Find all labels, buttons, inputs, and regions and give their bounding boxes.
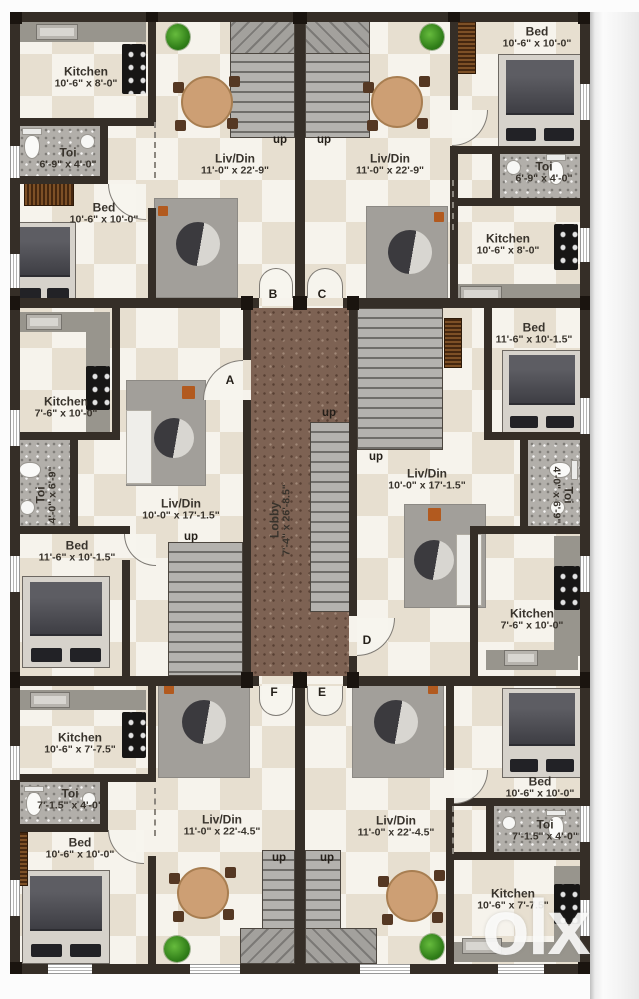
room-dims: 11'-0" x 22'-9": [356, 166, 424, 178]
decor-accent: [158, 206, 168, 216]
room-dims: 7'-4" x 26'-8.5": [282, 484, 294, 556]
kitchen-sink: [30, 692, 70, 708]
round-table: [154, 418, 194, 458]
wall: [243, 400, 251, 686]
bed: [12, 222, 76, 306]
stove: [122, 44, 146, 94]
plant: [164, 936, 190, 962]
page-margin-top: [0, 0, 639, 12]
toilet: [24, 135, 40, 159]
window: [360, 964, 410, 974]
chair: [417, 118, 428, 129]
wall: [70, 440, 78, 526]
room-label-toi-bottom-left: Toi7'-1.5" x 4'-0": [37, 787, 103, 812]
room-name: Toi: [535, 160, 552, 173]
wardrobe: [444, 318, 462, 368]
wall: [470, 526, 590, 534]
door-label-d: D: [363, 633, 372, 647]
room-label-bed-mid-right: Bed11'-6" x 10'-1.5": [496, 321, 573, 346]
column: [347, 296, 359, 310]
door-label-f: F: [270, 685, 277, 699]
wall: [10, 774, 156, 782]
wall: [470, 534, 478, 676]
page-margin-left: [0, 0, 10, 999]
room-dims: 7'-6" x 10'-0": [35, 409, 98, 421]
column: [293, 672, 307, 688]
opening-dashed: [452, 180, 454, 230]
wall: [520, 440, 528, 526]
kitchen-sink: [26, 314, 62, 330]
room-label-liv-top-left: Liv/Din11'-0" x 22'-9": [201, 152, 269, 177]
room-label-kitchen-mid-right: Kitchen7'-6" x 10'-0": [501, 607, 564, 632]
window: [580, 398, 590, 434]
bed: [498, 54, 582, 148]
kitchen-sink: [36, 24, 78, 40]
chair: [225, 867, 236, 878]
floorplan-image: Kitchen10'-6" x 8'-0" Toi6'-9" x 4'-0" B…: [0, 0, 639, 999]
room-label-bed-top-right: Bed10'-6" x 10'-0": [503, 25, 572, 50]
room-dims: 10'-6" x 10'-0": [70, 215, 139, 227]
room-label-liv-mid-right: Liv/Din10'-0" x 17'-1.5": [388, 467, 465, 492]
window: [580, 806, 590, 842]
wall: [450, 12, 458, 110]
room-label-toi-mid-left: Toi4'-0" x 6'-9": [34, 467, 59, 524]
room-label-bed-bottom-right: Bed10'-6" x 10'-0": [506, 775, 575, 800]
room-label-toi-bottom-right: Toi7'-1.5" x 4'-0": [512, 818, 578, 843]
room-label-liv-bottom-left: Liv/Din11'-0" x 22'-4.5": [184, 813, 261, 838]
wall: [295, 12, 305, 298]
window: [190, 964, 240, 974]
wall: [10, 298, 259, 308]
window: [10, 254, 20, 288]
wall: [10, 118, 156, 126]
bed: [502, 688, 582, 778]
bed: [22, 576, 110, 668]
chair: [419, 76, 430, 87]
wall: [112, 308, 120, 440]
staircase-lobby: [310, 422, 350, 612]
wall: [122, 560, 130, 676]
wall: [450, 198, 590, 206]
chair: [432, 912, 443, 923]
chair: [227, 118, 238, 129]
window: [580, 228, 590, 262]
plant: [420, 24, 444, 50]
stairs-up-label: up: [322, 407, 336, 419]
chair: [434, 870, 445, 881]
wall: [484, 308, 492, 440]
room-dims: 10'-0" x 17'-1.5": [142, 511, 219, 523]
room-name: Bed: [69, 836, 92, 849]
staircase-mid-right: [357, 308, 443, 450]
room-name: Bed: [529, 775, 552, 788]
wardrobe: [24, 182, 74, 206]
stairs-up-label: up: [273, 134, 287, 146]
page-margin-right: [590, 0, 639, 999]
dining-table: [181, 76, 233, 128]
room-dims: 4'-0" x 6'-9": [48, 467, 60, 524]
room-dims: 7'-1.5" x 4'-0": [37, 801, 103, 813]
room-name: Toi: [61, 787, 78, 800]
door-label-a: A: [226, 373, 235, 387]
column: [10, 962, 22, 974]
room-name: Liv/Din: [407, 467, 447, 480]
wall: [492, 154, 500, 200]
room-name: Toi: [34, 486, 47, 503]
staircase-mid-left: [168, 542, 243, 676]
room-dims: 6'-9" x 4'-0": [40, 160, 97, 172]
room-label-kitchen-bottom-left: Kitchen10'-6" x 7'-7.5": [44, 731, 116, 756]
room-label-toi-top-left: Toi6'-9" x 4'-0": [40, 146, 97, 171]
room-dims: 10'-6" x 10'-0": [503, 39, 572, 51]
desk: [456, 534, 482, 606]
room-dims: 10'-0" x 17'-1.5": [388, 481, 465, 493]
opening-dashed: [452, 806, 454, 854]
room-label-bed-top-left: Bed10'-6" x 10'-0": [70, 201, 139, 226]
door-label-c: C: [318, 287, 327, 301]
stove: [554, 224, 578, 270]
window: [10, 556, 20, 592]
room-name: Liv/Din: [202, 813, 242, 826]
column: [10, 12, 22, 24]
room-name: Bed: [526, 25, 549, 38]
dining-table: [371, 76, 423, 128]
column: [241, 672, 253, 688]
room-dims: 7'-6" x 10'-0": [501, 621, 564, 633]
wall: [148, 208, 156, 298]
stove: [554, 566, 580, 610]
wall: [450, 146, 590, 154]
room-name: Toi: [59, 146, 76, 159]
room-dims: 10'-6" x 10'-0": [46, 850, 115, 862]
bed: [22, 870, 110, 964]
wall: [10, 432, 120, 440]
page-margin-bottom: [0, 974, 590, 999]
desk: [126, 410, 152, 484]
column: [241, 296, 253, 310]
chair: [382, 914, 393, 925]
room-dims: 11'-0" x 22'-4.5": [184, 827, 261, 839]
wall: [10, 676, 259, 686]
room-dims: 11'-6" x 10'-1.5": [496, 335, 573, 347]
round-table: [414, 540, 454, 580]
room-label-liv-mid-left: Liv/Din10'-0" x 17'-1.5": [142, 497, 219, 522]
column: [293, 296, 307, 310]
room-dims: 11'-0" x 22'-4.5": [358, 828, 435, 840]
room-name: Kitchen: [58, 731, 102, 744]
room-name: Liv/Din: [215, 152, 255, 165]
room-label-liv-top-right: Liv/Din11'-0" x 22'-9": [356, 152, 424, 177]
window: [10, 746, 20, 780]
dining-table: [386, 870, 438, 922]
room-label-kitchen-mid-left: Kitchen7'-6" x 10'-0": [35, 395, 98, 420]
column: [347, 672, 359, 688]
door-label-e: E: [318, 685, 326, 699]
wall: [10, 176, 108, 184]
wall: [100, 126, 108, 176]
watermark-olx: olx: [482, 888, 589, 966]
window: [580, 556, 590, 592]
room-label-toi-top-right: Toi6'-9" x 4'-0": [516, 160, 573, 185]
wall: [148, 682, 156, 778]
chair: [175, 120, 186, 131]
window: [580, 84, 590, 120]
room-dims: 10'-6" x 8'-0": [477, 246, 540, 258]
column: [10, 296, 20, 310]
column: [578, 12, 590, 24]
room-name: Bed: [523, 321, 546, 334]
room-name: Kitchen: [510, 607, 554, 620]
stairs-up-label: up: [184, 531, 198, 543]
coffee-table: [388, 230, 432, 274]
opening-dashed: [154, 122, 156, 178]
coffee-table: [176, 222, 220, 266]
wall: [343, 676, 590, 686]
column: [448, 12, 460, 22]
wall: [10, 526, 130, 534]
stove: [122, 712, 146, 758]
decor-accent: [434, 212, 444, 222]
wall: [148, 12, 156, 122]
stairs-up-label: up: [369, 451, 383, 463]
window: [10, 410, 20, 446]
door-label-b: B: [269, 287, 278, 301]
room-name: Lobby: [268, 502, 281, 538]
wall: [349, 298, 357, 616]
room-label-bed-bottom-left: Bed10'-6" x 10'-0": [46, 836, 115, 861]
column: [293, 12, 307, 24]
room-label-liv-bottom-right: Liv/Din11'-0" x 22'-4.5": [358, 814, 435, 839]
stairs-up-label: up: [317, 134, 331, 146]
wall: [446, 682, 454, 770]
room-dims: 10'-6" x 8'-0": [55, 79, 118, 91]
window: [10, 146, 20, 178]
room-name: Kitchen: [64, 65, 108, 78]
room-dims: 10'-6" x 10'-0": [506, 789, 575, 801]
room-name: Bed: [66, 539, 89, 552]
column: [146, 12, 158, 22]
room-name: Liv/Din: [370, 152, 410, 165]
column: [10, 672, 20, 688]
room-label-bed-mid-left: Bed11'-6" x 10'-1.5": [39, 539, 116, 564]
room-name: Liv/Din: [376, 814, 416, 827]
room-label-kitchen-top-right: Kitchen10'-6" x 8'-0": [477, 232, 540, 257]
room-name: Toi: [536, 818, 553, 831]
room-name: Kitchen: [44, 395, 88, 408]
kitchen-sink: [504, 650, 538, 666]
orange-chair: [428, 508, 441, 521]
room-dims: 4'-0" x 6'-9": [549, 467, 561, 524]
wall: [484, 432, 590, 440]
window: [10, 880, 20, 916]
chair: [229, 76, 240, 87]
room-label-toi-mid-right: Toi4'-0" x 6'-9": [549, 467, 574, 524]
room-dims: 6'-9" x 4'-0": [516, 174, 573, 186]
wall: [486, 806, 494, 852]
room-label-lobby: Lobby7'-4" x 26'-8.5": [268, 484, 293, 556]
room-dims: 11'-0" x 22'-9": [201, 166, 269, 178]
plant: [420, 934, 444, 960]
chair: [367, 120, 378, 131]
orange-chair: [182, 386, 195, 399]
staircase-winder-bottom-right: [305, 928, 377, 964]
room-name: Liv/Din: [161, 497, 201, 510]
room-dims: 7'-1.5" x 4'-0": [512, 832, 578, 844]
wall: [295, 676, 305, 974]
room-label-kitchen-top-left: Kitchen10'-6" x 8'-0": [55, 65, 118, 90]
room-name: Bed: [93, 201, 116, 214]
wall: [446, 852, 590, 860]
wall: [10, 824, 108, 832]
column: [580, 672, 590, 688]
stairs-up-label: up: [320, 852, 334, 864]
bed: [502, 350, 582, 434]
room-name: Toi: [561, 486, 574, 503]
wall: [343, 298, 590, 308]
room-dims: 10'-6" x 7'-7.5": [44, 745, 116, 757]
window: [48, 964, 92, 974]
room-name: Kitchen: [486, 232, 530, 245]
chair: [223, 909, 234, 920]
chair: [173, 911, 184, 922]
coffee-table: [374, 700, 418, 744]
stairs-up-label: up: [272, 852, 286, 864]
plant: [166, 24, 190, 50]
dining-table: [177, 867, 229, 919]
coffee-table: [182, 700, 226, 744]
toilet-tank: [22, 128, 42, 135]
opening-dashed: [154, 788, 156, 836]
wall: [148, 856, 156, 964]
column: [580, 296, 590, 310]
staircase-winder-bottom-left: [240, 928, 295, 964]
room-dims: 11'-6" x 10'-1.5": [39, 553, 116, 565]
